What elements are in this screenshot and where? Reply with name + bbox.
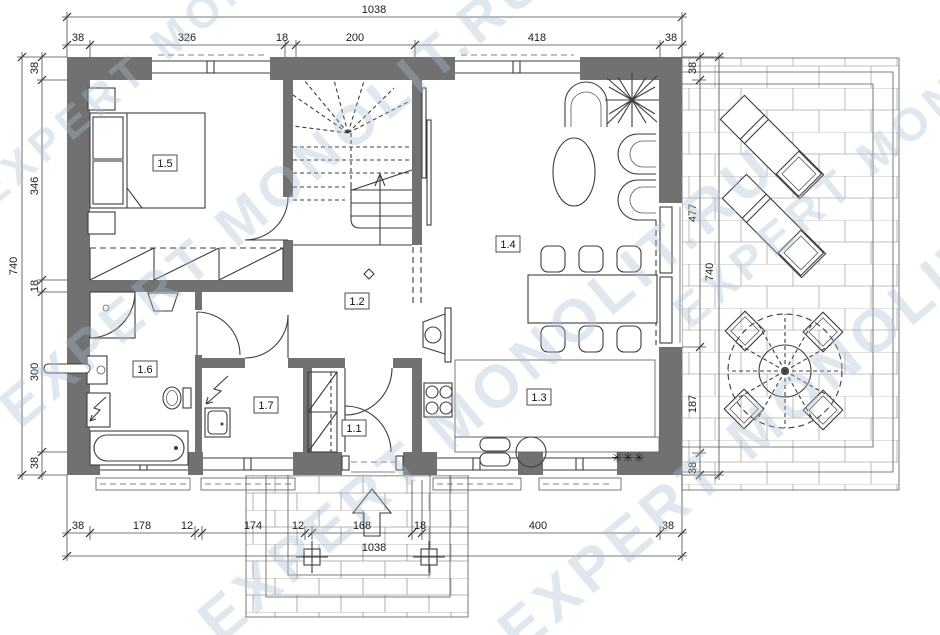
dim-label: 38 (29, 457, 41, 469)
room-number: 1.5 (157, 158, 172, 170)
room-label-1-7: 1.7 (254, 397, 278, 413)
dining-chair (617, 246, 641, 272)
washing-machine (87, 393, 110, 427)
dim-label: 12 (292, 520, 304, 532)
window-top-living (455, 55, 580, 80)
dim-label: 18 (276, 32, 288, 44)
dim-label: 1038 (362, 4, 386, 16)
nightstand (88, 88, 115, 110)
dim-label: 38 (687, 462, 699, 474)
dim-label: 38 (665, 32, 677, 44)
room-label-1-4: 1.4 (496, 236, 520, 252)
dim-label: 18 (29, 280, 41, 292)
dining-chair (579, 246, 603, 272)
dimension-left: 740 38 346 18 300 38 (8, 52, 67, 480)
dining-chair (617, 326, 641, 352)
dim-label: 168 (353, 520, 371, 532)
dining-table (528, 275, 657, 323)
dim-label: 174 (244, 520, 262, 532)
dim-label: 300 (29, 363, 41, 381)
dim-label: 326 (178, 32, 196, 44)
dim-label: 740 (704, 263, 716, 281)
dim-label: 200 (346, 32, 364, 44)
dim-label: 38 (687, 62, 699, 74)
dimension-top: 1038 38 326 18 200 418 38 (62, 4, 687, 57)
room-label-1-6: 1.6 (133, 361, 157, 377)
dining-chair (579, 326, 603, 352)
nightstand (88, 212, 115, 234)
room-label-1-1: 1.1 (342, 420, 366, 436)
room-number: 1.1 (346, 423, 361, 435)
dim-label: 18 (414, 520, 426, 532)
bathtub (90, 431, 188, 465)
dim-label: 178 (133, 520, 151, 532)
room-number: 1.7 (258, 400, 273, 412)
stove (424, 383, 452, 417)
dim-label: 740 (8, 257, 20, 275)
room-number: 1.2 (349, 296, 364, 308)
coffee-table (553, 138, 595, 206)
dim-label: 187 (687, 395, 699, 413)
floor-plan: ✳✳✳ (0, 0, 940, 635)
room-label-1-3: 1.3 (527, 389, 551, 405)
dining-chair (541, 326, 565, 352)
dim-label: 346 (29, 177, 41, 195)
dim-label: 38 (72, 520, 84, 532)
toilet (163, 387, 191, 409)
room-number: 1.4 (500, 239, 515, 251)
dim-label: 38 (29, 62, 41, 74)
water-pipe-stub (44, 364, 90, 373)
room-number: 1.3 (531, 392, 546, 404)
dining-set (528, 246, 657, 352)
porch-tiles (246, 475, 468, 617)
room-number: 1.6 (137, 364, 152, 376)
dim-label: 477 (687, 204, 699, 222)
dim-label: 418 (528, 32, 546, 44)
window-top-bedroom (152, 55, 270, 80)
dim-label: 38 (72, 32, 84, 44)
dining-chair (541, 246, 565, 272)
dim-label: 38 (662, 520, 674, 532)
floor-plan-page: ✳✳✳ (0, 0, 940, 635)
room-label-1-2: 1.2 (345, 293, 369, 309)
dim-ticks (63, 12, 686, 57)
dim-label: 400 (529, 520, 547, 532)
dim-label: 1038 (362, 542, 386, 554)
room-label-1-5: 1.5 (153, 155, 177, 171)
fridge-symbol: ✳✳✳ (612, 450, 645, 465)
utility-sink (205, 408, 230, 437)
terrace-door (659, 203, 682, 347)
entrance-porch (246, 475, 468, 617)
dim-label: 12 (181, 520, 193, 532)
